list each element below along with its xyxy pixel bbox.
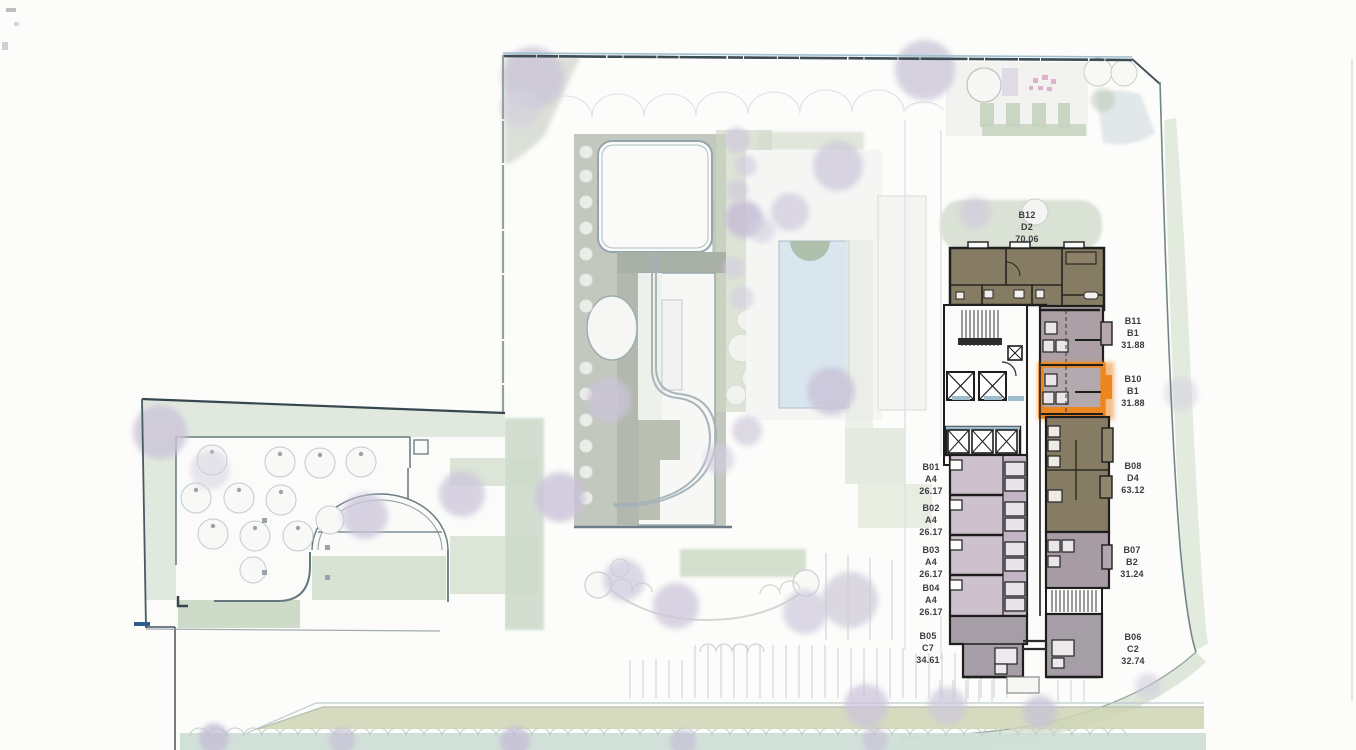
svg-text:B05: B05 [919, 631, 936, 641]
svg-text:63.12: 63.12 [1121, 485, 1145, 495]
svg-text:A4: A4 [925, 595, 937, 605]
svg-text:B04: B04 [922, 583, 939, 593]
svg-text:A4: A4 [925, 515, 937, 525]
svg-text:B1: B1 [1127, 328, 1139, 338]
svg-text:26.17: 26.17 [919, 607, 943, 617]
svg-text:31.88: 31.88 [1121, 340, 1145, 350]
svg-text:26.17: 26.17 [919, 569, 943, 579]
svg-text:B2: B2 [1126, 557, 1138, 567]
svg-text:A4: A4 [925, 557, 937, 567]
svg-text:70.06: 70.06 [1015, 234, 1039, 244]
svg-text:31.88: 31.88 [1121, 398, 1145, 408]
svg-text:B02: B02 [922, 503, 939, 513]
svg-text:B11: B11 [1125, 316, 1142, 326]
svg-text:32.74: 32.74 [1121, 656, 1145, 666]
svg-text:B01: B01 [922, 462, 939, 472]
svg-text:B10: B10 [1124, 374, 1141, 384]
svg-text:C2: C2 [1127, 644, 1139, 654]
svg-text:B07: B07 [1123, 545, 1140, 555]
svg-text:D4: D4 [1127, 473, 1139, 483]
svg-text:B1: B1 [1127, 386, 1139, 396]
svg-text:B06: B06 [1124, 632, 1141, 642]
svg-text:A4: A4 [925, 474, 937, 484]
svg-text:26.17: 26.17 [919, 527, 943, 537]
svg-text:34.61: 34.61 [916, 655, 940, 665]
svg-text:D2: D2 [1021, 222, 1033, 232]
svg-text:26.17: 26.17 [919, 486, 943, 496]
svg-text:B12: B12 [1018, 210, 1035, 220]
svg-text:31.24: 31.24 [1120, 569, 1144, 579]
svg-text:B08: B08 [1124, 461, 1141, 471]
svg-text:B03: B03 [922, 545, 939, 555]
svg-text:C7: C7 [922, 643, 934, 653]
